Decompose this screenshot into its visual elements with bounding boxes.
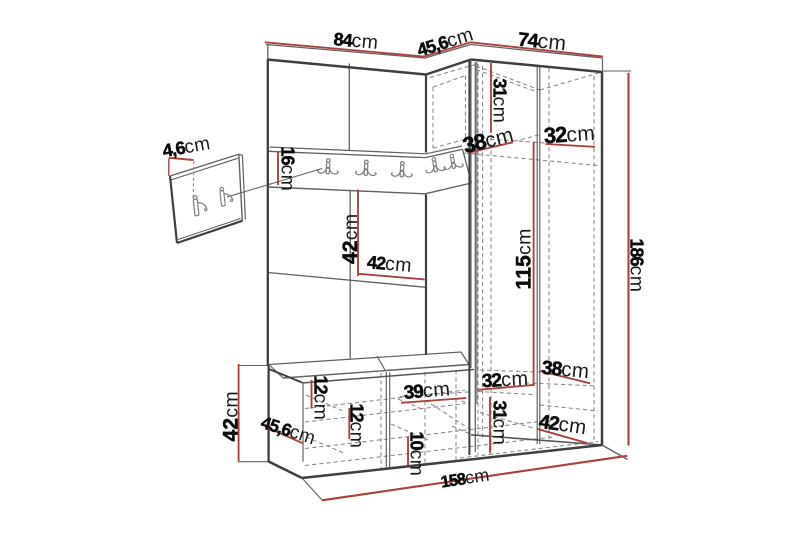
svg-text:32cm: 32cm (481, 368, 529, 392)
svg-text:10cm: 10cm (406, 432, 428, 477)
svg-text:38cm: 38cm (541, 356, 591, 383)
svg-text:42cm: 42cm (220, 391, 243, 442)
svg-text:115cm: 115cm (513, 228, 536, 289)
svg-text:12cm: 12cm (346, 404, 368, 449)
svg-text:32cm: 32cm (543, 120, 596, 149)
svg-text:31cm: 31cm (489, 79, 511, 124)
svg-text:12cm: 12cm (310, 376, 332, 421)
svg-text:39cm: 39cm (403, 378, 451, 404)
svg-text:31cm: 31cm (489, 401, 511, 446)
svg-text:42cm: 42cm (339, 213, 362, 264)
svg-text:186cm: 186cm (626, 239, 648, 293)
svg-text:16cm: 16cm (277, 147, 299, 192)
